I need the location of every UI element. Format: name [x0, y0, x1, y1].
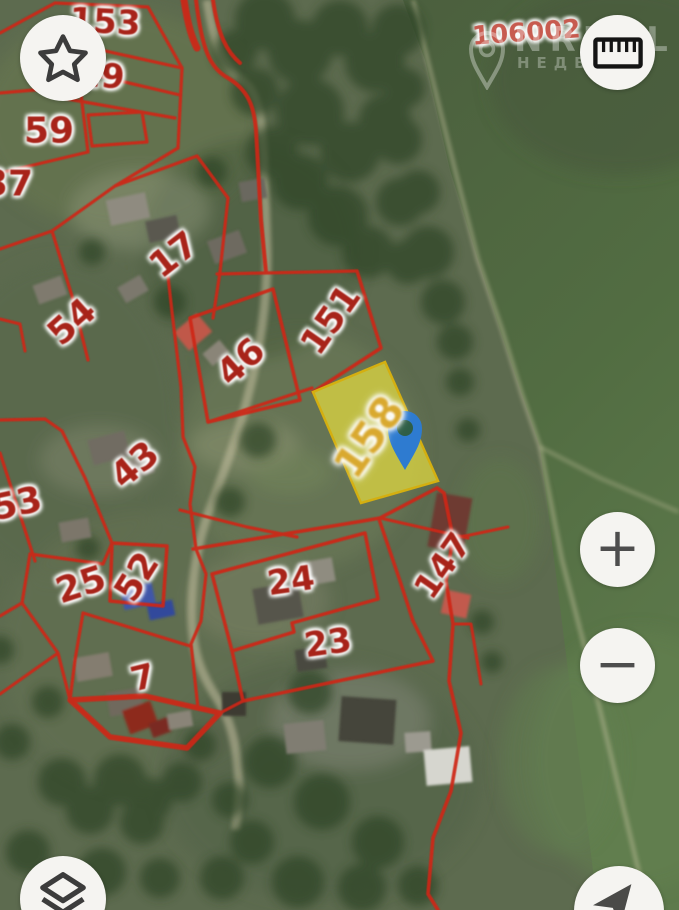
measure-button[interactable] [580, 15, 655, 90]
map-app: 1532959371754461514353522524147237158 10… [0, 0, 679, 910]
minus-icon: − [595, 637, 640, 691]
favorite-button[interactable] [20, 15, 106, 101]
navigation-arrow-icon [587, 868, 652, 910]
plus-icon: + [595, 521, 640, 575]
ruler-icon [593, 36, 643, 70]
zoom-out-button[interactable]: − [580, 628, 655, 703]
star-icon [36, 31, 90, 85]
satellite-map[interactable] [0, 0, 679, 910]
layers-icon [37, 866, 89, 910]
zoom-in-button[interactable]: + [580, 512, 655, 587]
